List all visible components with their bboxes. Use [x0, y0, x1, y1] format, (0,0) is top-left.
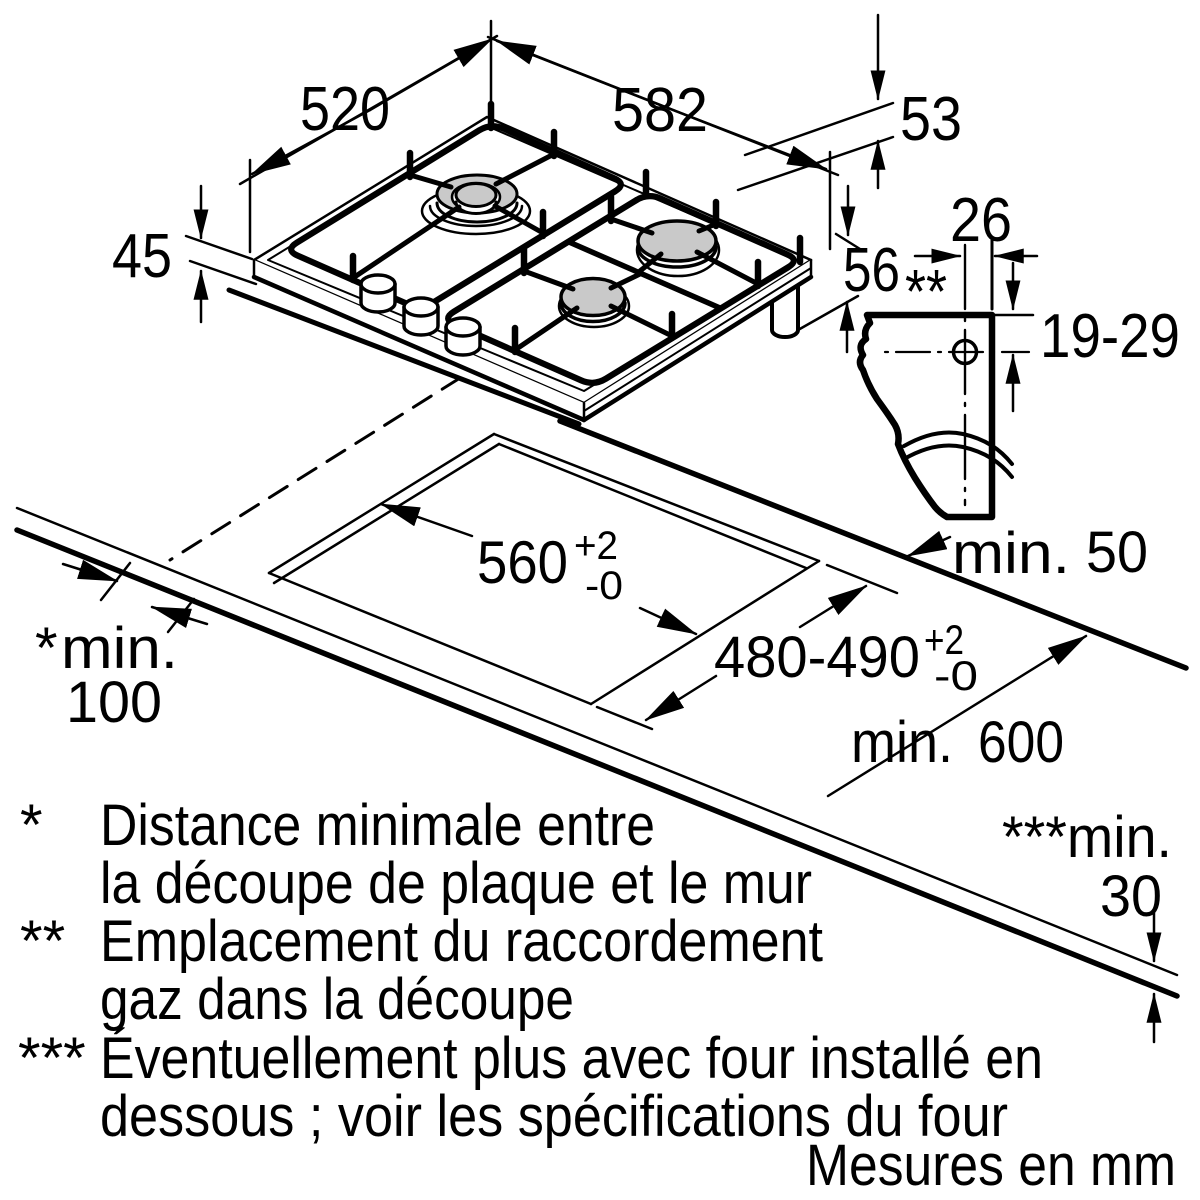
- svg-text:30: 30: [1100, 864, 1162, 929]
- svg-text:Mesures en mm: Mesures en mm: [806, 1133, 1176, 1198]
- svg-text:-0: -0: [585, 564, 623, 608]
- svg-text:50: 50: [1086, 520, 1148, 585]
- svg-text:600: 600: [978, 710, 1064, 775]
- svg-text:19-29: 19-29: [1040, 302, 1180, 371]
- svg-text:*: *: [35, 616, 58, 681]
- svg-text:Emplacement du raccordement: Emplacement du raccordement: [100, 909, 823, 974]
- svg-text:Éventuellement plus avec four: Éventuellement plus avec four installé e…: [100, 1026, 1043, 1091]
- svg-text:45: 45: [112, 222, 172, 291]
- svg-text:560: 560: [477, 529, 568, 596]
- svg-text:min.: min.: [952, 521, 1070, 586]
- svg-text:**: **: [20, 909, 65, 974]
- svg-text:26: 26: [950, 186, 1012, 255]
- svg-text:***min.: ***min.: [1002, 805, 1172, 870]
- svg-text:Distance minimale entre: Distance minimale entre: [100, 793, 655, 858]
- svg-text:-0: -0: [934, 652, 978, 699]
- svg-text:520: 520: [300, 75, 390, 144]
- svg-text:gaz dans la découpe: gaz dans la découpe: [100, 967, 574, 1032]
- svg-text:**: **: [905, 258, 947, 327]
- svg-text:56: 56: [843, 236, 900, 305]
- svg-text:+2: +2: [574, 524, 618, 568]
- svg-text:100: 100: [66, 670, 162, 735]
- svg-text:la découpe de plaque et le mur: la découpe de plaque et le mur: [100, 851, 812, 916]
- svg-text:480-490: 480-490: [714, 625, 920, 690]
- svg-text:*: *: [20, 793, 43, 858]
- svg-text:582: 582: [612, 76, 708, 145]
- svg-text:min.: min.: [851, 710, 953, 775]
- svg-text:***: ***: [18, 1026, 86, 1091]
- svg-text:53: 53: [900, 85, 962, 154]
